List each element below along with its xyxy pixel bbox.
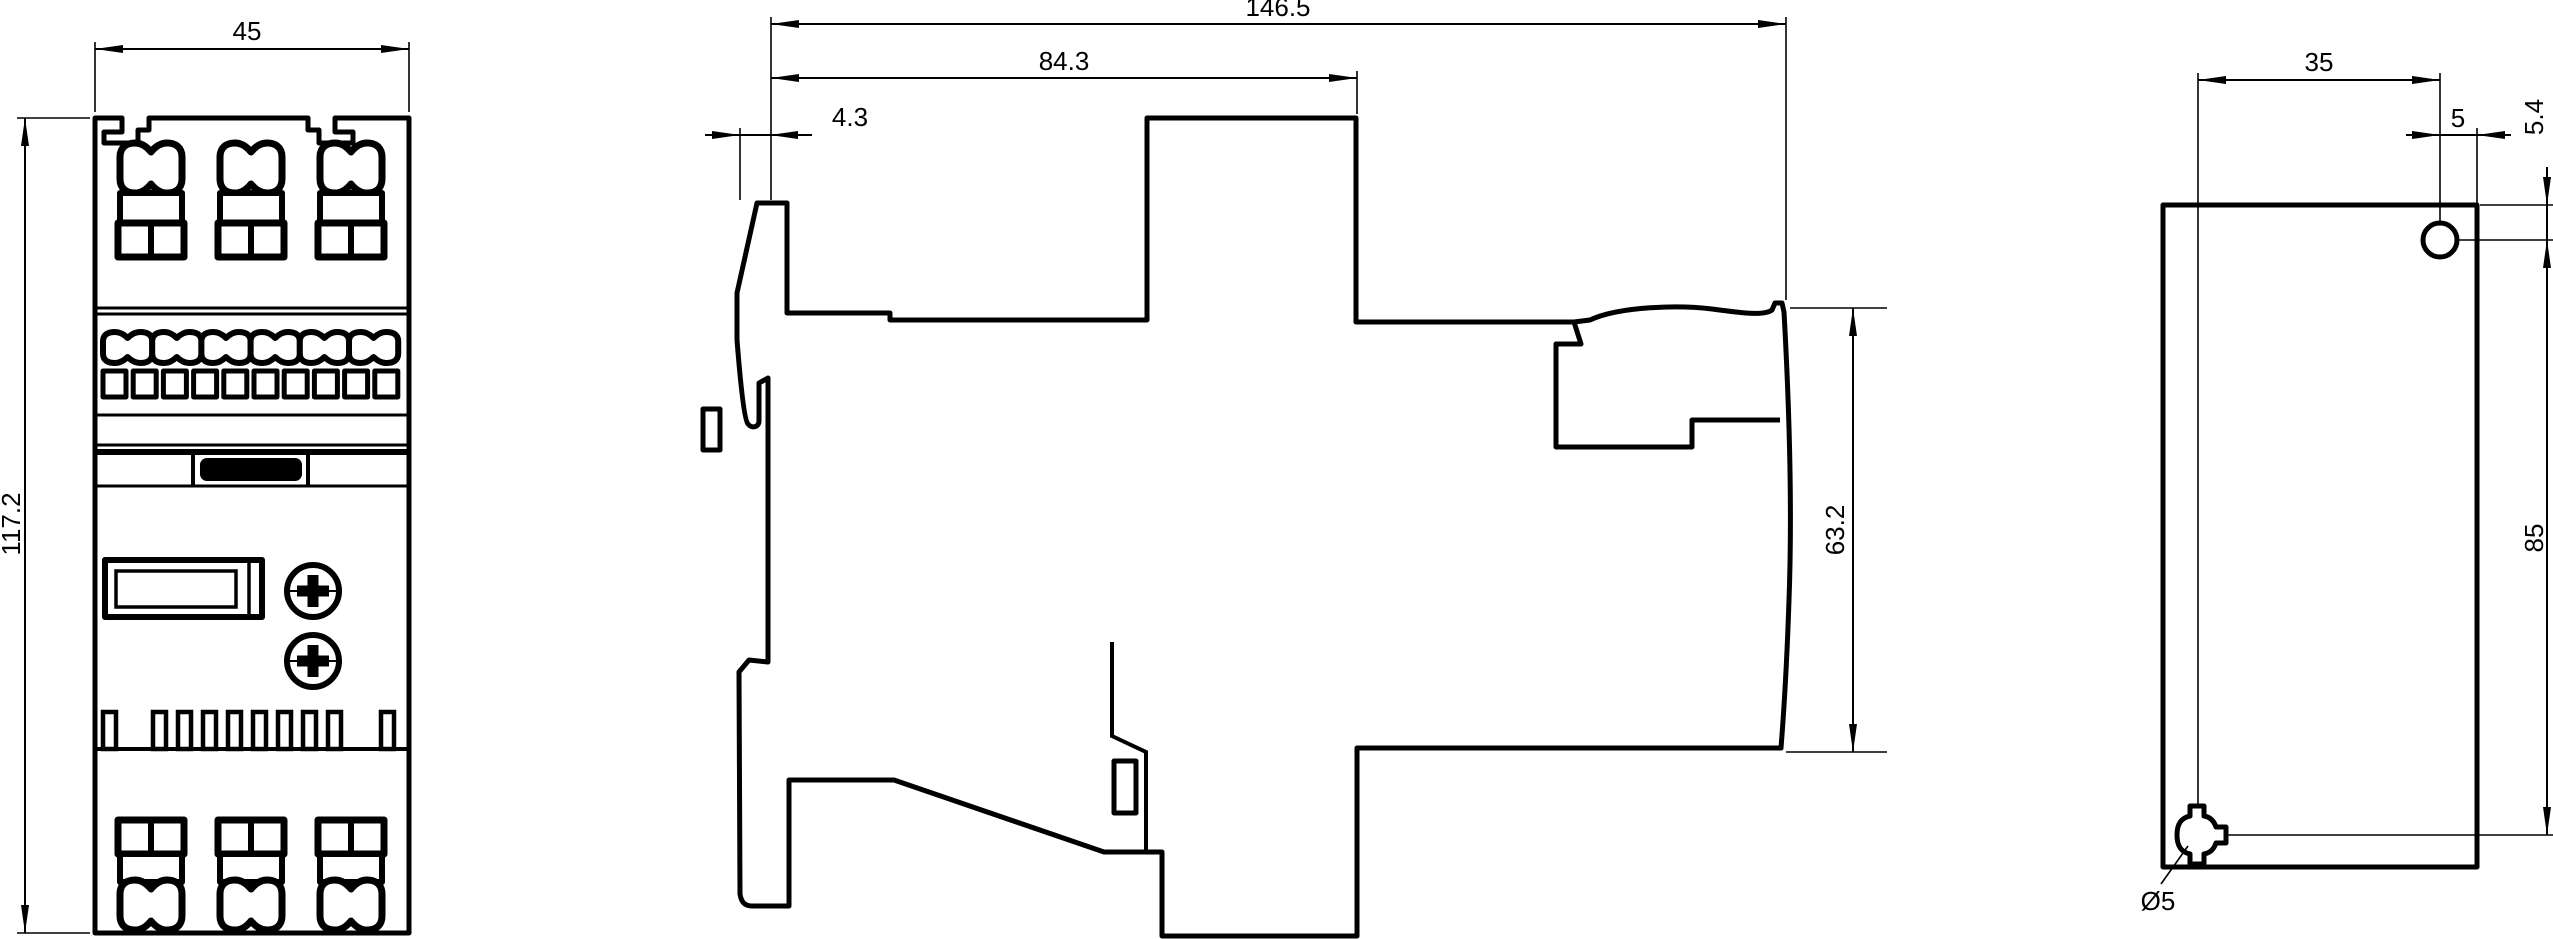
control-clamp [201, 332, 250, 363]
terminal-clamp-shape [120, 880, 182, 930]
dim-rear-hole-edge-offset: 5 [2406, 103, 2511, 203]
dim-rear-hole-top-offset: 5.4 [2519, 99, 2549, 240]
dim-side-front-tab: 4.3 [705, 102, 868, 200]
terminal-clamp-shape [220, 143, 282, 193]
dim-label-side-rail-height: 63.2 [1820, 505, 1850, 556]
dim-front-height: 117.2 [0, 118, 90, 933]
terminal-body [320, 193, 382, 223]
side-front-button [703, 409, 720, 450]
display-window-inner [116, 571, 236, 607]
rear-panel-outline [2163, 205, 2477, 867]
technical-drawing-canvas: 45 117.2 146.5 84.3 [0, 0, 2553, 939]
brand-logo-block [200, 458, 302, 481]
control-screw [163, 371, 186, 397]
control-clamp [152, 332, 201, 363]
front-terminal-top-3 [318, 143, 384, 257]
dim-label-side-total-depth: 146.5 [1245, 0, 1310, 22]
control-screw [375, 371, 398, 397]
front-terminal-bottom-3 [318, 820, 384, 930]
control-clamp [251, 332, 300, 363]
front-terminal-bottom-1 [118, 820, 184, 930]
terminal-clamp-shape [120, 143, 182, 193]
dim-rear-hole-spacing-x: 35 [2198, 47, 2440, 80]
dim-rear-hole-spacing-y: 85 [2519, 240, 2549, 835]
dim-label-front-height: 117.2 [0, 492, 26, 555]
control-screw [133, 371, 156, 397]
control-screw [194, 371, 217, 397]
terminal-clamp-shape [320, 143, 382, 193]
dim-label-rear-hole-diameter: Ø5 [2141, 886, 2176, 916]
dim-label-rear-hole-spacing-y: 85 [2519, 524, 2549, 553]
adjust-screw-icon [287, 565, 339, 617]
rear-view: Ø5 35 5 5.4 85 [2141, 47, 2553, 916]
dim-label-side-body-depth: 84.3 [1039, 46, 1090, 76]
dim-label-side-front-tab: 4.3 [832, 102, 868, 132]
front-terminal-bottom-2 [218, 820, 284, 930]
control-screw [224, 371, 247, 397]
control-screw [345, 371, 368, 397]
front-view: 45 117.2 [0, 16, 409, 933]
dim-side-rail-height: 63.2 [1786, 308, 1887, 752]
dim-label-rear-hole-top-offset: 5.4 [2519, 99, 2549, 135]
rear-mount-hole-top [2423, 223, 2457, 257]
terminal-body [220, 193, 282, 223]
control-clamp [300, 332, 349, 363]
control-clamp [349, 332, 398, 363]
dimension-drawing: 45 117.2 146.5 84.3 [0, 0, 2553, 939]
control-screw [103, 371, 126, 397]
dim-front-width: 45 [95, 16, 409, 112]
adjust-screw-icon [287, 635, 339, 687]
front-terminal-top-2 [218, 143, 284, 257]
dim-label-rear-hole-edge-offset: 5 [2451, 103, 2465, 133]
terminal-clamp-shape [220, 880, 282, 930]
dim-label-front-width: 45 [233, 16, 262, 46]
front-terminal-top-1 [118, 143, 184, 257]
control-screw [284, 371, 307, 397]
control-screw [314, 371, 337, 397]
side-body-outline [737, 118, 1790, 936]
dim-label-rear-hole-spacing-x: 35 [2305, 47, 2334, 77]
control-screw [254, 371, 277, 397]
side-view: 146.5 84.3 4.3 63.2 [703, 0, 1887, 936]
terminal-body [120, 193, 182, 223]
terminal-clamp-shape [320, 880, 382, 930]
control-clamp [103, 332, 152, 363]
side-rail-release-slot [1114, 761, 1136, 813]
